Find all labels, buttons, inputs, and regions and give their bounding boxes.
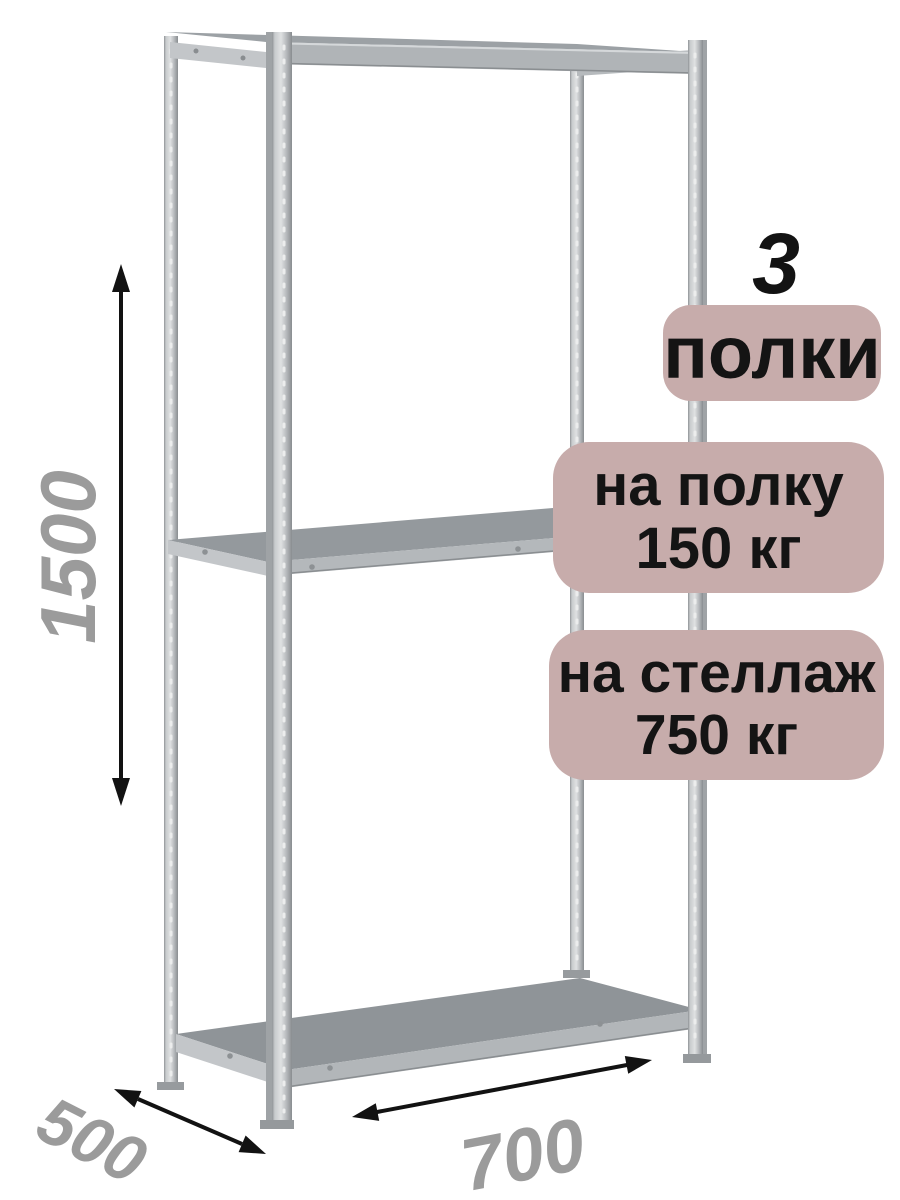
per-shelf-load-badge: на полку 150 кг: [553, 442, 884, 593]
per-shelf-load-line1: на полку: [593, 455, 844, 518]
shelf-count-number: 3: [716, 219, 836, 309]
back-left-post: [157, 36, 184, 1090]
height-dimension-label: 1500: [28, 407, 108, 707]
rack-drawing: [0, 0, 900, 1200]
per-shelf-load-line2: 150 кг: [635, 518, 801, 581]
height-dimension-arrow: [112, 264, 130, 806]
per-rack-load-line2: 750 кг: [635, 705, 798, 767]
bottom-shelf: [176, 978, 700, 1088]
per-rack-load-line1: на стеллаж: [558, 643, 876, 705]
shelf-count-badge: полки: [663, 305, 881, 401]
top-shelf: [166, 32, 695, 76]
product-image: 1500 500 700 3 полки на полку 150 кг на …: [0, 0, 900, 1200]
per-rack-load-badge: на стеллаж 750 кг: [549, 630, 884, 780]
front-left-post: [260, 32, 294, 1129]
shelf-count-label: полки: [663, 313, 881, 393]
